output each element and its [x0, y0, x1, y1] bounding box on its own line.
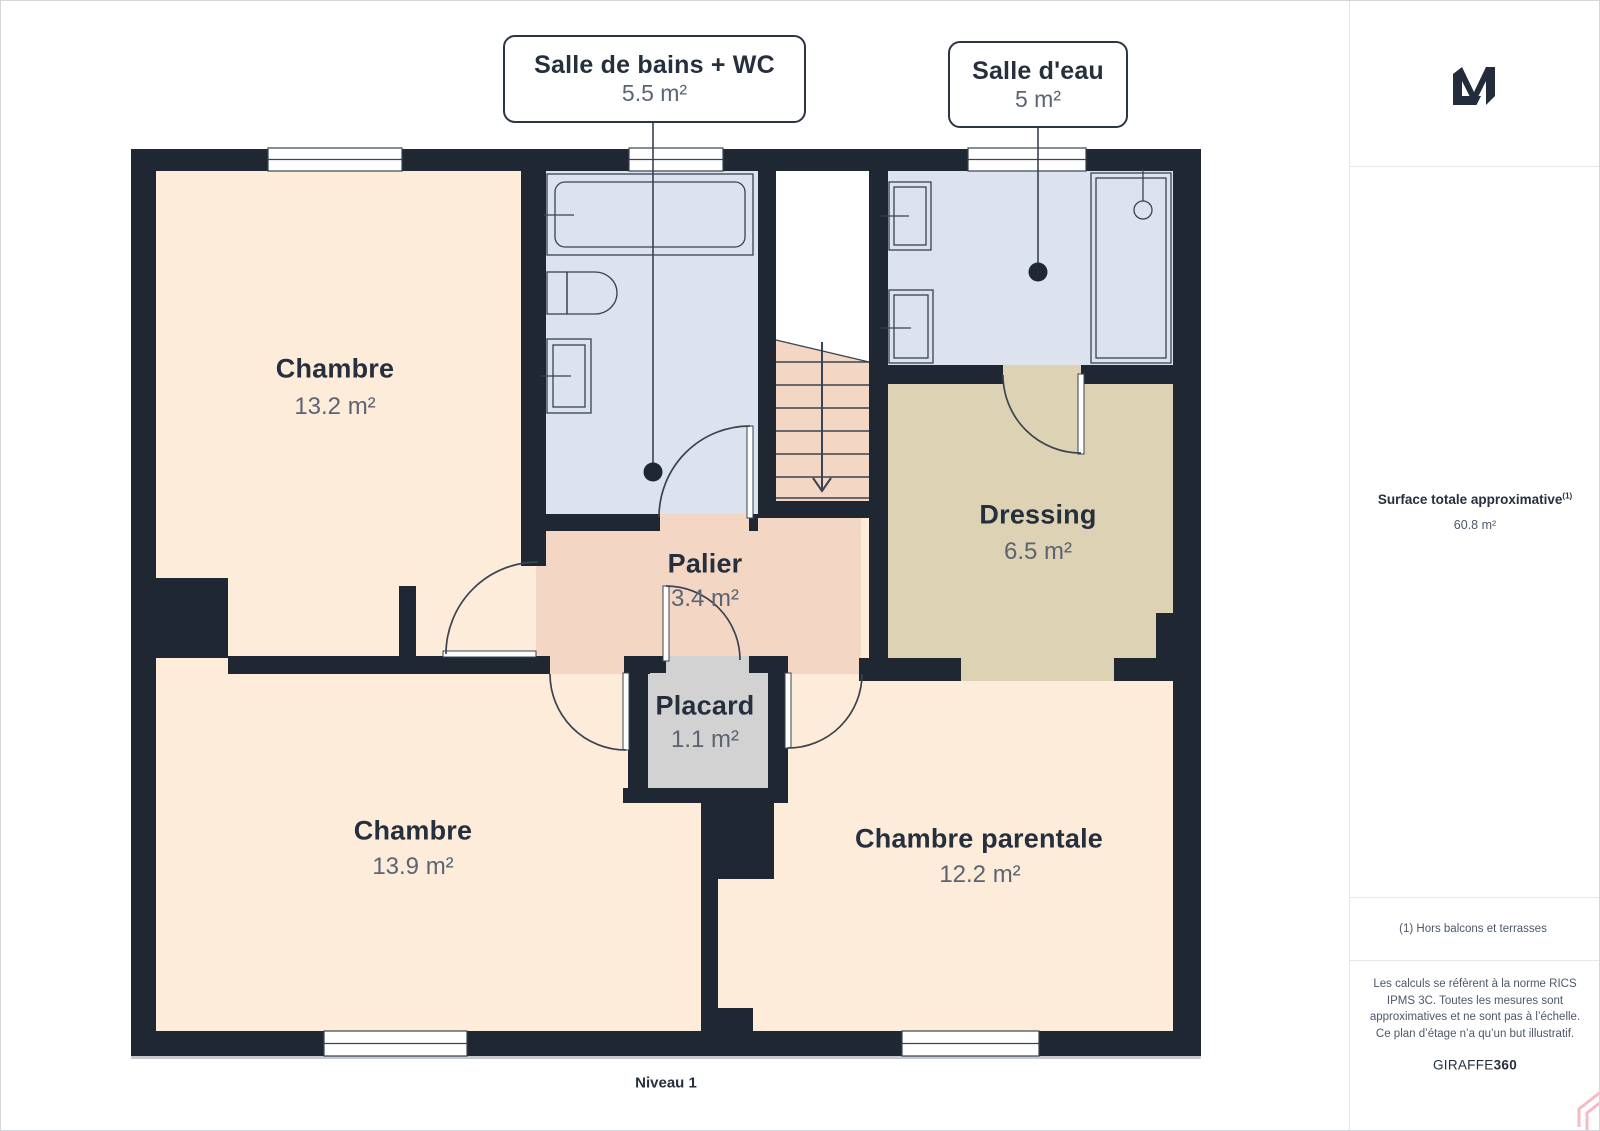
room-area-placard: 1.1 m² [671, 726, 739, 754]
room-label-chambre-1: Chambre [276, 354, 394, 385]
room-area-dressing: 6.5 m² [1004, 538, 1072, 566]
window [902, 1031, 1039, 1056]
room-label-chambre-2: Chambre [354, 816, 472, 847]
agency-logo-icon [1451, 65, 1497, 108]
door-leaf [785, 673, 791, 748]
callout-salle-deau: Salle d'eau 5 m² [948, 41, 1128, 128]
room-area-chambre-2: 13.9 m² [372, 853, 453, 881]
building-shadow [131, 1056, 1201, 1059]
room-label-dressing: Dressing [979, 500, 1096, 531]
window [968, 148, 1086, 171]
watermark-house-icon [1579, 1083, 1600, 1131]
room-area-chambre-parentale: 12.2 m² [939, 861, 1020, 889]
brand-label: GIRAFFE360 [1433, 1058, 1517, 1073]
dressing-opening-floor [961, 658, 1114, 681]
level-label: Niveau 1 [635, 1075, 697, 1092]
door-leaf [443, 651, 536, 657]
door-leaf [623, 673, 629, 750]
callout-anchor-dot [1029, 263, 1048, 282]
callout-room-area: 5.5 m² [622, 80, 687, 107]
footnote: (1) Hors balcons et terrasses [1399, 923, 1547, 935]
door-leaf [1078, 374, 1084, 454]
surface-total-text: Surface totale approximative [1378, 492, 1563, 507]
surface-total-title: Surface totale approximative(1) [1378, 491, 1572, 507]
callout-room-name: Salle de bains + WC [534, 51, 775, 80]
window [268, 148, 402, 171]
brand-name: GIRAFFE [1433, 1058, 1494, 1073]
callout-salle-de-bains: Salle de bains + WC 5.5 m² [503, 35, 806, 123]
room-area-palier: 3.4 m² [671, 585, 739, 613]
callout-anchor-dot [644, 463, 663, 482]
door-leaf [663, 586, 669, 661]
callout-room-area: 5 m² [1015, 86, 1061, 113]
surface-total-sup: (1) [1562, 491, 1572, 500]
room-label-chambre-parentale: Chambre parentale [855, 824, 1103, 855]
surface-total-value: 60.8 m² [1454, 518, 1496, 532]
sidebar-divider-low [1350, 960, 1600, 961]
floor-plan-drawing [1, 1, 1600, 1131]
room-label-palier: Palier [668, 549, 743, 580]
callout-room-name: Salle d'eau [972, 57, 1104, 86]
sidebar-divider [1349, 1, 1350, 1131]
window [324, 1031, 467, 1056]
room-area-chambre-1: 13.2 m² [294, 393, 375, 421]
brand-suffix: 360 [1494, 1058, 1517, 1073]
sidebar-divider-top [1350, 166, 1600, 167]
sidebar-divider-mid [1350, 897, 1600, 898]
floor-plan-page: Salle de bains + WC 5.5 m² Salle d'eau 5… [0, 0, 1600, 1131]
disclaimer-text: Les calculs se réfèrent à la norme RICS … [1365, 976, 1585, 1043]
window [629, 148, 723, 171]
room-label-placard: Placard [656, 691, 755, 722]
door-leaf [747, 426, 753, 518]
